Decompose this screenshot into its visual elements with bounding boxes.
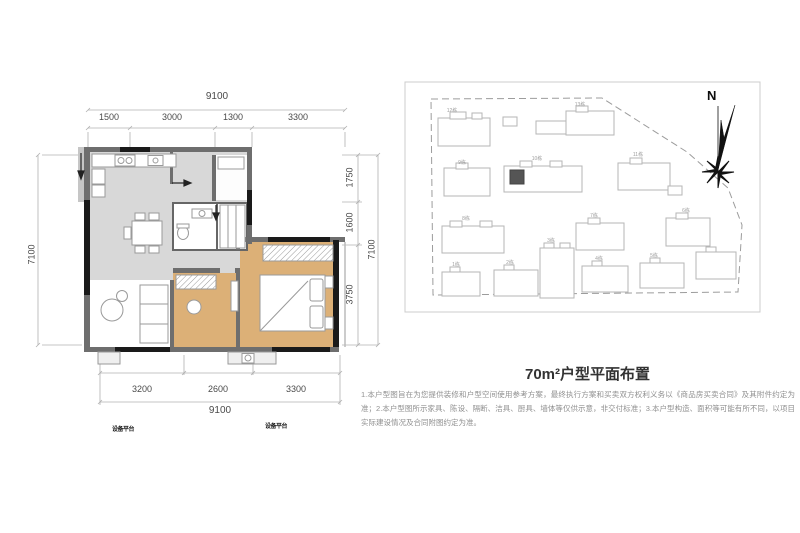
dim-top-seg-4: 3300 [278, 112, 318, 123]
building-label: 1栋 [445, 262, 467, 268]
disclaimer-text: 1.本户型图旨在为您提供装修和户型空间使用参考方案，最终执行方案和买卖双方权利义… [361, 388, 795, 430]
dining-table [132, 221, 162, 245]
building-label: 3栋 [540, 238, 562, 244]
annotation-left: 设备平台 [112, 424, 134, 433]
entry-cabinet [218, 157, 244, 169]
building-label: 7栋 [583, 213, 605, 219]
fridge [92, 169, 105, 184]
building-label: 6栋 [675, 208, 697, 214]
dim-left-total: 7100 [27, 235, 38, 275]
dim-bottom-seg-2: 2600 [198, 384, 238, 395]
dim-top-seg-2: 3000 [152, 112, 192, 123]
building-label: 8栋 [455, 216, 477, 222]
building-label: 2栋 [499, 260, 521, 266]
kitchen-sink [148, 156, 163, 166]
coffee-table [101, 299, 123, 321]
balcony-left [98, 352, 120, 364]
dim-top-seg-3: 1300 [213, 112, 253, 123]
building-label: 4栋 [588, 256, 610, 262]
wardrobe1 [263, 245, 333, 261]
highlighted-unit [510, 170, 524, 184]
sofa [140, 285, 168, 343]
floor-plan-page: 9100 1500 3000 1300 3300 7100 1750 1600 … [0, 0, 800, 533]
desk [231, 281, 238, 311]
dim-top-total: 9100 [197, 91, 237, 102]
wardrobe2 [176, 275, 216, 289]
floor-plan-drawing [20, 85, 390, 460]
nightstand [325, 317, 333, 329]
page-title: 70m²户型平面布置 [405, 363, 770, 384]
dim-top-seg-1: 1500 [89, 112, 129, 123]
dim-right-seg-2: 1600 [345, 203, 356, 243]
building-label: 9栋 [451, 160, 473, 166]
north-label: N [707, 88, 716, 103]
nightstand [325, 276, 333, 288]
building-label: 11栋 [627, 152, 649, 158]
stool [187, 300, 201, 314]
building-label: 5栋 [643, 253, 665, 259]
site-plan-drawing [400, 80, 780, 320]
building-label: 13栋 [569, 102, 591, 108]
dim-bottom-seg-3: 3300 [276, 384, 316, 395]
dim-right-seg-3: 3750 [345, 275, 356, 315]
building-label: 12栋 [441, 108, 463, 114]
annotation-right: 设备平台 [265, 421, 287, 430]
closet [220, 205, 245, 248]
dim-right-seg-1: 1750 [345, 158, 356, 198]
building-label: 10栋 [526, 156, 548, 162]
dim-bottom-total: 9100 [200, 405, 240, 416]
dim-right-total: 7100 [367, 230, 378, 270]
dim-bottom-seg-1: 3200 [122, 384, 162, 395]
